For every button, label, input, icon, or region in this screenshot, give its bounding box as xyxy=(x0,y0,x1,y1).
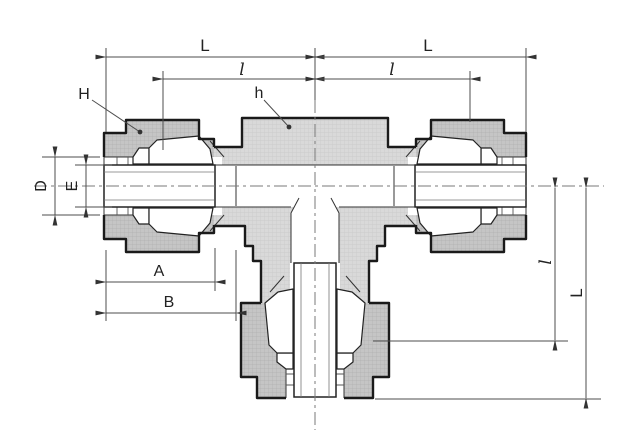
dim-label-B: B xyxy=(164,294,175,311)
fitting-diagram-canvas: L L l l H h D E A B l L xyxy=(0,0,625,438)
leader-dot-h xyxy=(287,125,292,130)
tee-fitting-drawing: L L l l H h D E A B l L xyxy=(0,0,625,438)
dim-label-D: D xyxy=(33,180,50,192)
dim-label-E: E xyxy=(64,181,81,192)
dim-label-L-top-left: L xyxy=(200,36,209,55)
dim-label-H: H xyxy=(78,86,90,103)
dim-label-L-right: L xyxy=(567,288,586,297)
leader-dot-H xyxy=(138,130,143,135)
dim-label-h: h xyxy=(255,85,264,102)
dim-label-A: A xyxy=(154,263,165,280)
dim-label-l-top-left: l xyxy=(239,60,244,80)
dim-label-L-top-right: L xyxy=(423,36,432,55)
dim-label-l-top-right: l xyxy=(389,60,394,80)
dim-label-l-right: l xyxy=(536,259,556,264)
